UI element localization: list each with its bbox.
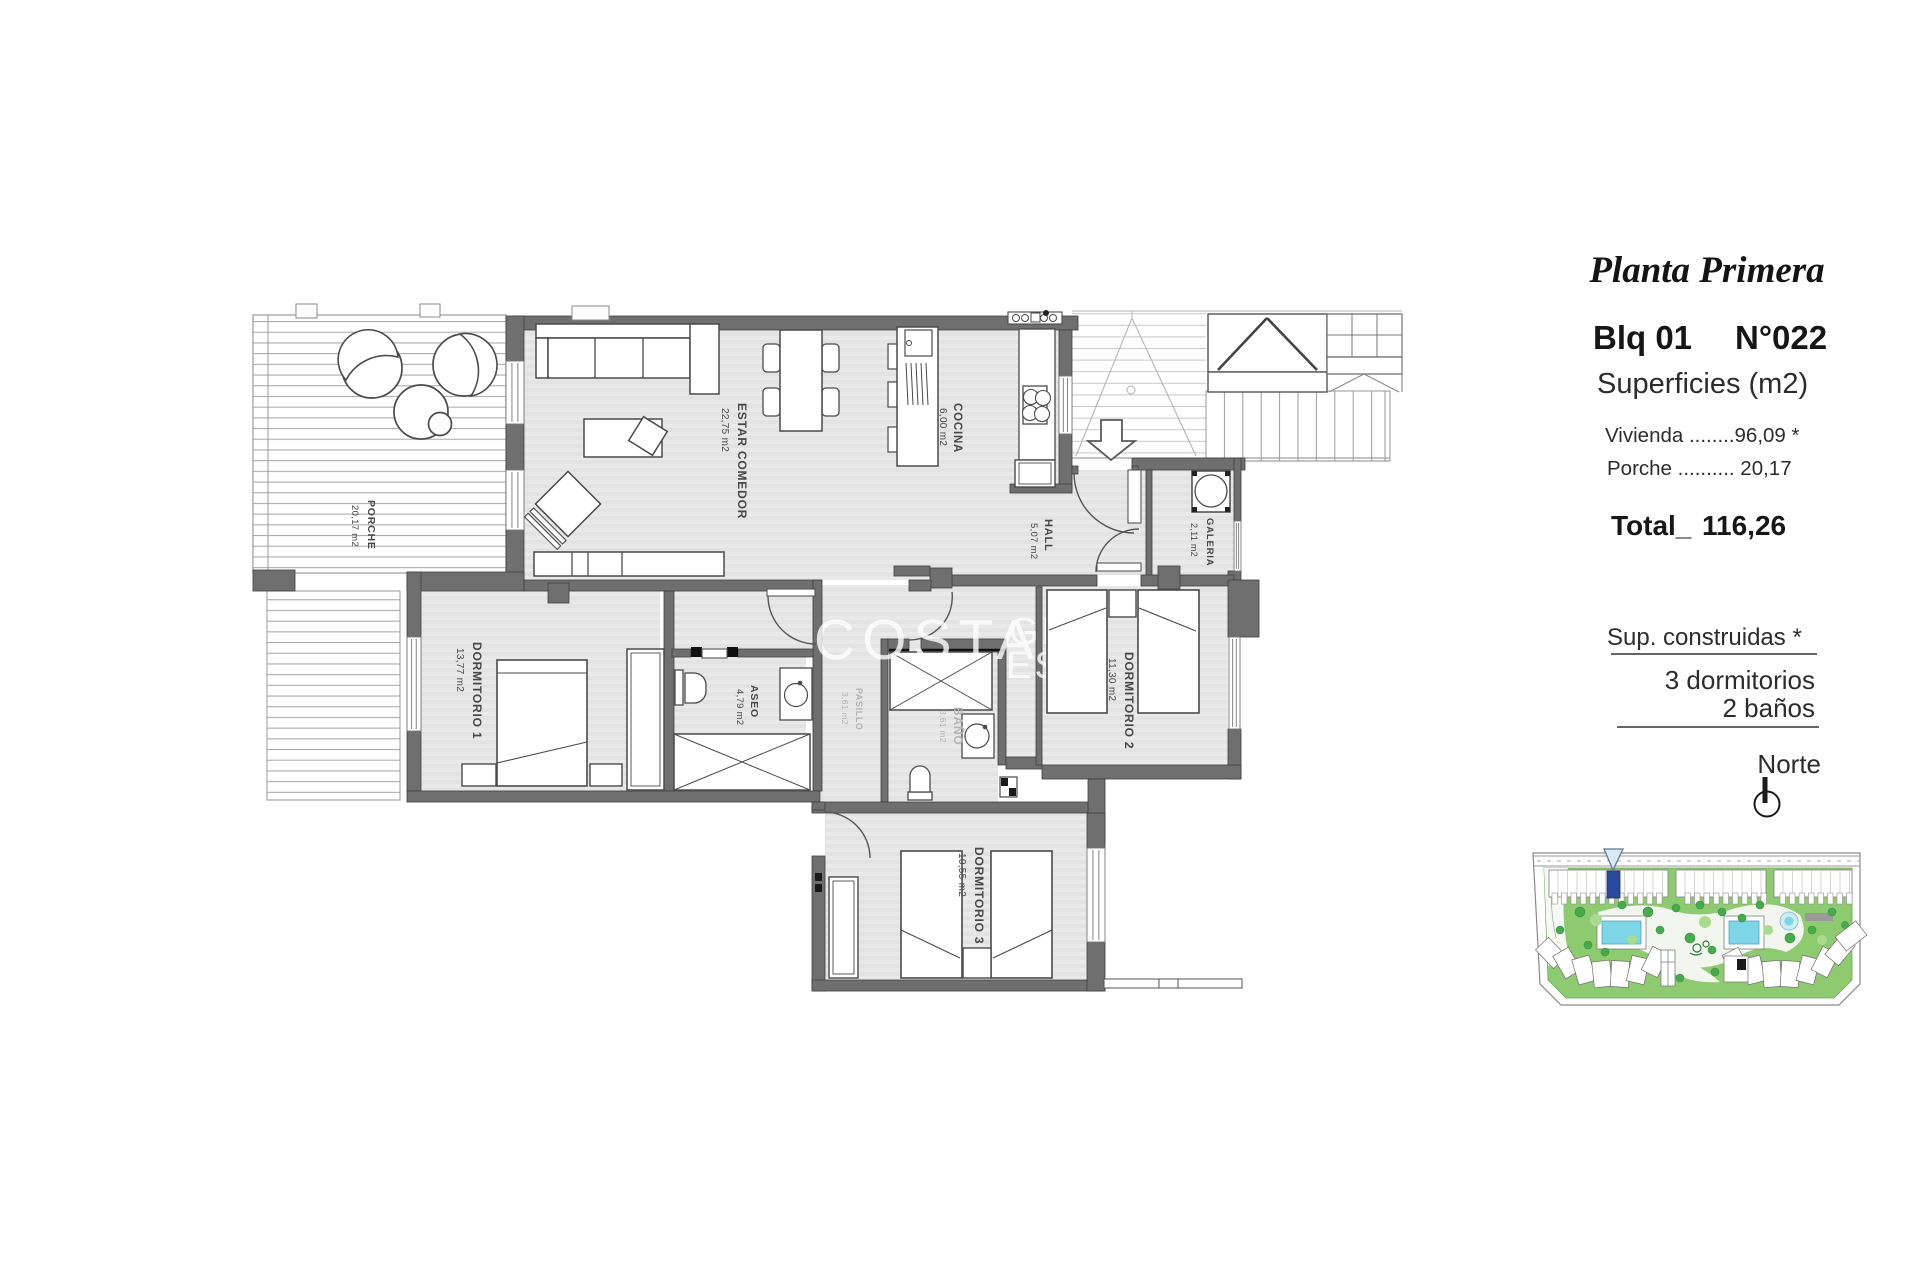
svg-text:13,77 m2: 13,77 m2 — [454, 648, 465, 692]
svg-text:Planta Primera: Planta Primera — [1588, 250, 1824, 291]
svg-text:22,75 m2: 22,75 m2 — [719, 408, 730, 452]
svg-text:5,07 m2: 5,07 m2 — [1028, 523, 1039, 559]
svg-text:Vivienda ........96,09 *: Vivienda ........96,09 * — [1605, 424, 1800, 447]
svg-text:3,61 m2: 3,61 m2 — [938, 710, 948, 743]
svg-text:HALL: HALL — [1042, 519, 1054, 552]
svg-text:Norte: Norte — [1757, 749, 1821, 779]
svg-text:3,61 m2: 3,61 m2 — [840, 692, 850, 725]
svg-text:6,00 m2: 6,00 m2 — [937, 408, 948, 446]
svg-text:11,30 m2: 11,30 m2 — [1106, 658, 1117, 701]
svg-text:2,11 m2: 2,11 m2 — [1189, 523, 1199, 557]
svg-text:Total_: Total_ — [1611, 510, 1692, 541]
svg-text:10,55 m2: 10,55 m2 — [956, 853, 967, 897]
svg-text:4,79 m2: 4,79 m2 — [734, 689, 745, 725]
svg-text:3 dormitorios: 3 dormitorios — [1665, 665, 1815, 695]
svg-text:DORMITORIO 3: DORMITORIO 3 — [972, 847, 986, 944]
svg-text:ASEO: ASEO — [748, 685, 760, 718]
svg-text:Sup. construidas *: Sup. construidas * — [1607, 624, 1802, 651]
svg-text:N°022: N°022 — [1735, 319, 1827, 356]
svg-text:20,17 m2: 20,17 m2 — [349, 505, 360, 547]
svg-text:PORCHE: PORCHE — [365, 500, 377, 550]
svg-text:GALERIA: GALERIA — [1204, 518, 1215, 566]
svg-text:DORMITORIO 2: DORMITORIO 2 — [1122, 652, 1136, 749]
svg-text:BAÑO: BAÑO — [951, 707, 966, 746]
svg-text:DORMITORIO 1: DORMITORIO 1 — [470, 642, 484, 739]
svg-text:COCINA: COCINA — [951, 403, 963, 453]
svg-text:Porche .......... 20,17: Porche .......... 20,17 — [1607, 457, 1792, 480]
svg-text:Blq 01: Blq 01 — [1593, 319, 1692, 356]
svg-text:2 baños: 2 baños — [1722, 693, 1815, 723]
svg-text:ESTAR COMEDOR: ESTAR COMEDOR — [735, 403, 749, 519]
svg-text:116,26: 116,26 — [1702, 510, 1786, 541]
svg-text:PASILLO: PASILLO — [854, 688, 864, 731]
svg-text:Superficies (m2): Superficies (m2) — [1597, 368, 1808, 400]
